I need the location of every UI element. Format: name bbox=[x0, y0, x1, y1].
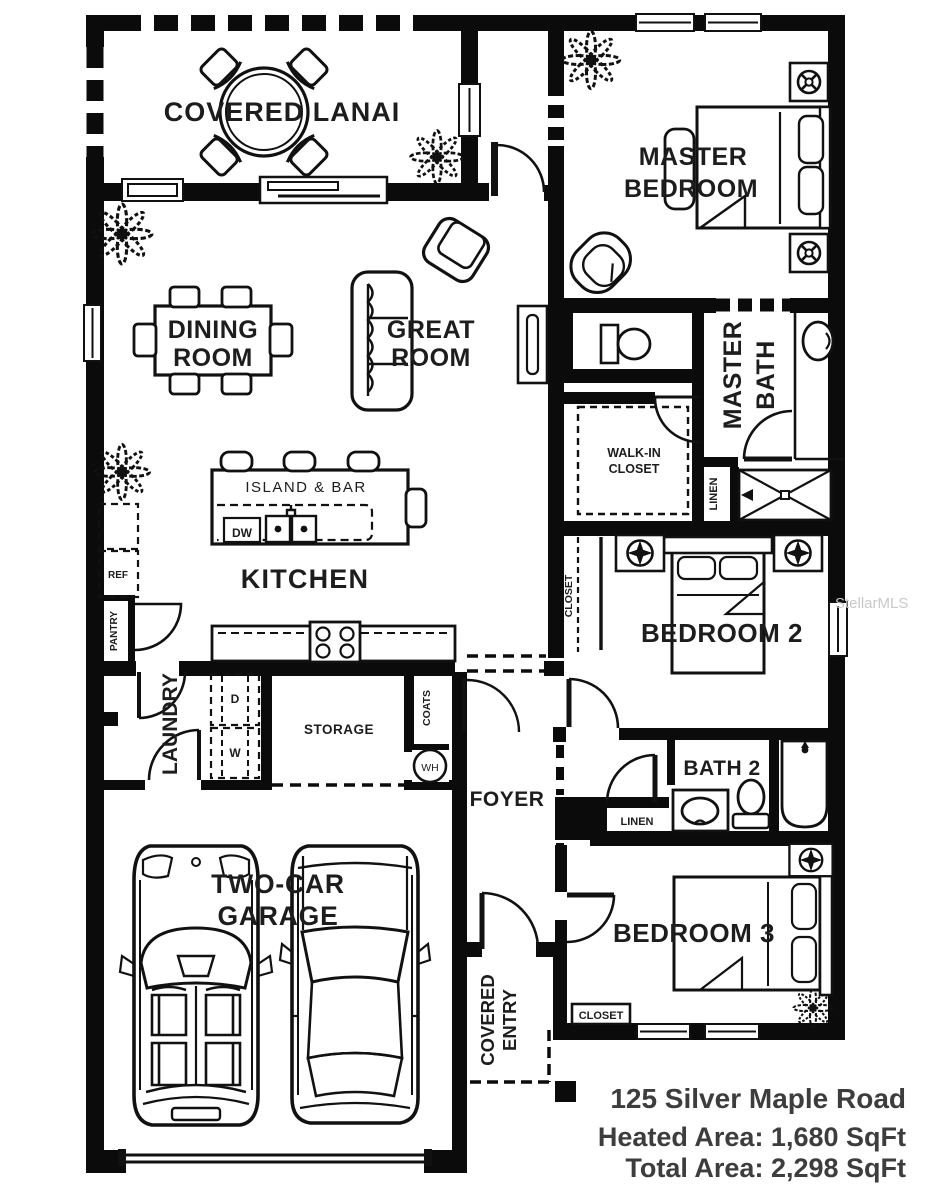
svg-text:CLOSET: CLOSET bbox=[579, 1010, 624, 1022]
svg-text:W: W bbox=[229, 746, 241, 760]
svg-text:REF: REF bbox=[108, 570, 128, 581]
svg-text:StellarMLS: StellarMLS bbox=[835, 595, 908, 612]
svg-text:KITCHEN: KITCHEN bbox=[241, 564, 369, 594]
svg-text:125 Silver Maple Road: 125 Silver Maple Road bbox=[610, 1083, 906, 1114]
svg-text:TWO-CAR: TWO-CAR bbox=[211, 869, 345, 899]
svg-text:Heated Area: 1,680 SqFt: Heated Area: 1,680 SqFt bbox=[598, 1122, 906, 1152]
svg-text:DINING: DINING bbox=[168, 316, 259, 344]
svg-text:ROOM: ROOM bbox=[173, 344, 253, 372]
svg-text:LINEN: LINEN bbox=[621, 816, 654, 828]
svg-text:COATS: COATS bbox=[421, 690, 433, 726]
svg-text:MASTER: MASTER bbox=[639, 143, 748, 171]
svg-text:D: D bbox=[231, 692, 240, 706]
svg-text:MASTER: MASTER bbox=[719, 321, 747, 430]
svg-text:WALK-IN: WALK-IN bbox=[607, 446, 660, 460]
svg-text:BATH: BATH bbox=[752, 340, 780, 410]
svg-text:CLOSET: CLOSET bbox=[563, 574, 575, 617]
svg-text:GARAGE: GARAGE bbox=[217, 901, 338, 931]
svg-text:DW: DW bbox=[232, 526, 253, 540]
svg-text:BEDROOM 3: BEDROOM 3 bbox=[613, 918, 775, 948]
svg-text:COVERED: COVERED bbox=[477, 974, 498, 1066]
svg-text:WH: WH bbox=[421, 762, 439, 774]
svg-text:BEDROOM: BEDROOM bbox=[624, 175, 758, 203]
svg-text:CLOSET: CLOSET bbox=[609, 462, 660, 476]
svg-text:PANTRY: PANTRY bbox=[109, 611, 120, 651]
svg-text:LAUNDRY: LAUNDRY bbox=[159, 673, 182, 775]
svg-text:LINEN: LINEN bbox=[708, 477, 720, 510]
svg-text:ISLAND & BAR: ISLAND & BAR bbox=[245, 479, 366, 496]
svg-text:BATH 2: BATH 2 bbox=[683, 757, 760, 780]
svg-text:FOYER: FOYER bbox=[470, 788, 545, 811]
svg-text:STORAGE: STORAGE bbox=[304, 722, 374, 737]
svg-text:ROOM: ROOM bbox=[391, 344, 471, 372]
svg-text:COVERED LANAI: COVERED LANAI bbox=[164, 97, 401, 127]
svg-text:GREAT: GREAT bbox=[387, 316, 475, 344]
svg-text:BEDROOM 2: BEDROOM 2 bbox=[641, 618, 803, 648]
svg-text:Total Area: 2,298 SqFt: Total Area: 2,298 SqFt bbox=[625, 1153, 906, 1183]
svg-text:ENTRY: ENTRY bbox=[499, 988, 520, 1051]
